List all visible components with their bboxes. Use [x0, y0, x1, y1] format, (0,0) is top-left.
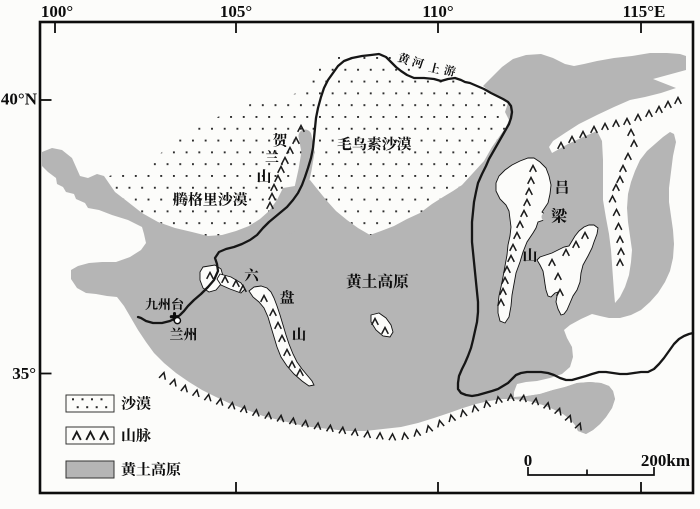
svg-text:200km: 200km	[641, 451, 690, 470]
svg-text:105°: 105°	[220, 2, 252, 21]
svg-text:0: 0	[524, 451, 533, 470]
svg-text:35°: 35°	[12, 364, 36, 383]
svg-text:40°N: 40°N	[1, 90, 38, 109]
svg-text:100°: 100°	[41, 2, 73, 21]
svg-text:115°E: 115°E	[623, 2, 666, 21]
svg-text:110°: 110°	[422, 2, 453, 21]
